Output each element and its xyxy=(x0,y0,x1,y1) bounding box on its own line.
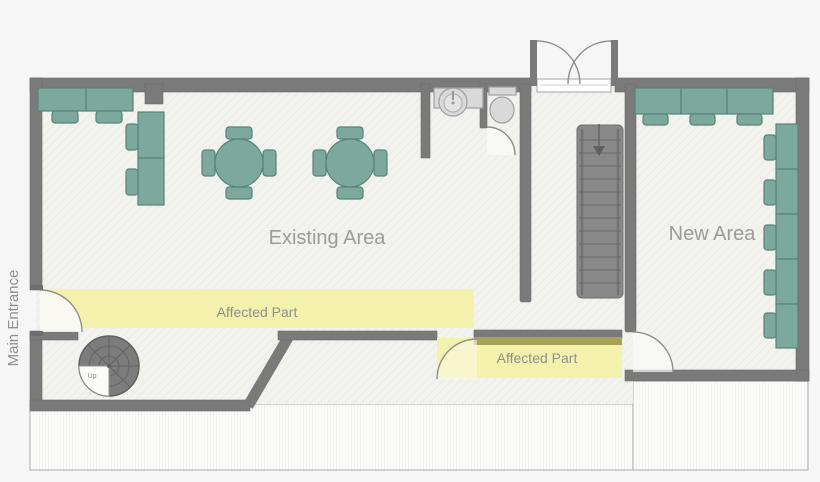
double-door-right-leaf xyxy=(611,40,618,86)
chair xyxy=(226,187,252,199)
chair xyxy=(643,114,668,125)
spiral-staircase: Up xyxy=(79,336,139,396)
toilet-icon xyxy=(490,97,514,123)
wall-toilet-left xyxy=(421,84,430,158)
chair xyxy=(764,135,776,160)
chair xyxy=(313,150,326,176)
new-area-side-desks xyxy=(764,124,798,348)
chair xyxy=(337,187,363,199)
round-table xyxy=(215,139,263,187)
wall-left-lower xyxy=(30,332,42,406)
chair xyxy=(764,270,776,295)
desk xyxy=(635,88,681,114)
floor-plan: Up xyxy=(0,0,820,482)
desk xyxy=(776,259,798,304)
affected-part-left-label: Affected Part xyxy=(217,304,298,320)
chair xyxy=(263,150,276,176)
floor-plan-drawing: Up xyxy=(0,0,820,482)
chair xyxy=(690,114,715,125)
desk xyxy=(86,88,133,111)
wall-stair-hall-left xyxy=(520,84,531,302)
chair xyxy=(337,127,363,139)
sink-drain xyxy=(452,102,455,105)
wall-bottom-left xyxy=(30,400,250,411)
chair xyxy=(737,114,762,125)
existing-area-label: Existing Area xyxy=(269,227,387,249)
chair xyxy=(226,127,252,139)
chair xyxy=(126,124,138,150)
sidewalk-left xyxy=(30,404,633,470)
round-table xyxy=(326,139,374,187)
straight-staircase xyxy=(577,124,623,298)
wall-lower-horizontal-right xyxy=(474,330,622,338)
desk xyxy=(776,124,798,169)
chair xyxy=(764,225,776,250)
wall-stub-top-left xyxy=(145,84,163,104)
desk xyxy=(138,158,164,205)
chair xyxy=(764,313,776,338)
chair xyxy=(374,150,387,176)
door-jamb-top xyxy=(30,285,43,290)
new-area-top-desks xyxy=(635,88,773,125)
toilet-tank xyxy=(489,87,516,95)
desk xyxy=(776,214,798,259)
desk xyxy=(776,304,798,348)
chair xyxy=(202,150,215,176)
spiral-up-label: Up xyxy=(88,373,97,380)
desk xyxy=(776,169,798,214)
main-entrance-label: Main Entrance xyxy=(5,270,22,367)
sidewalk-right xyxy=(633,381,808,470)
desk xyxy=(681,88,727,114)
desk xyxy=(138,112,164,158)
affected-wall-overlap-stripe xyxy=(474,337,622,345)
chair xyxy=(764,180,776,205)
desk xyxy=(38,88,86,111)
desk xyxy=(727,88,773,114)
affected-part-right-label: Affected Part xyxy=(497,350,578,366)
wall-new-area-left xyxy=(625,84,636,332)
chair xyxy=(126,169,138,195)
new-area-label: New Area xyxy=(669,223,757,245)
wall-lower-horizontal-left xyxy=(278,331,437,340)
double-door-left-leaf xyxy=(530,40,537,86)
chair xyxy=(52,111,78,123)
chair xyxy=(96,111,122,123)
door-jamb-bottom xyxy=(30,331,43,336)
spiral-center-post xyxy=(107,364,111,368)
